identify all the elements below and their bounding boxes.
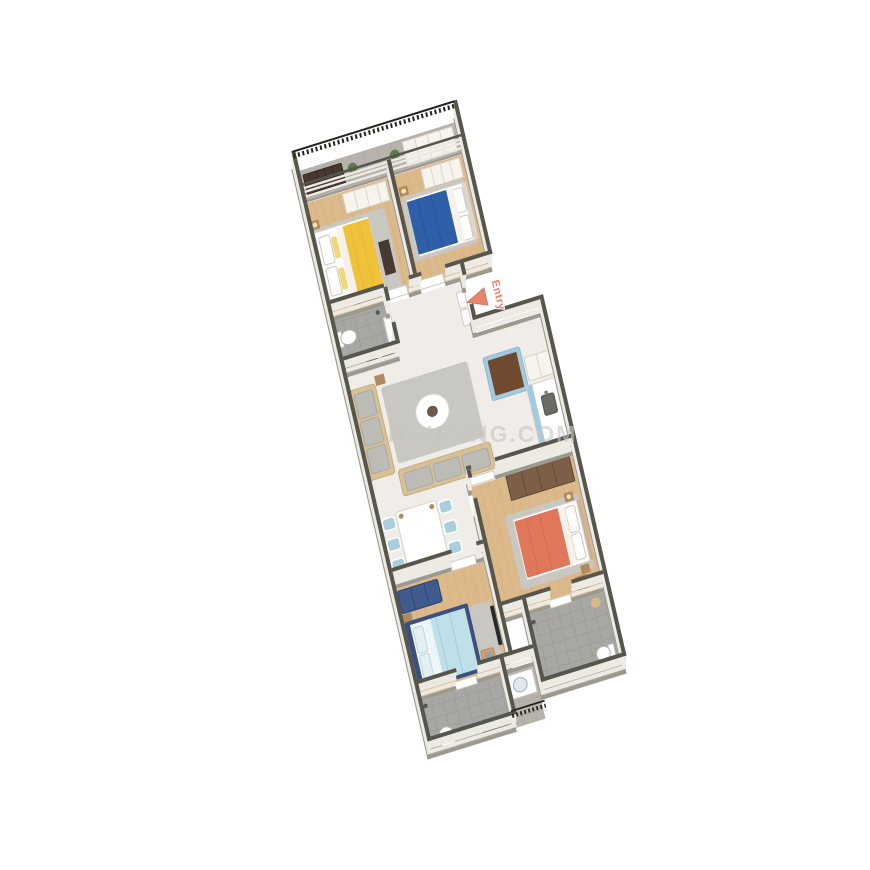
plan-ground bbox=[296, 110, 628, 754]
entry-arrow-icon bbox=[465, 288, 488, 312]
entry-label: Entry bbox=[489, 278, 507, 312]
floor-plan-svg: Entry bbox=[0, 0, 870, 870]
floor-plan-canvas: Entry HOUSING.COM bbox=[0, 0, 870, 870]
